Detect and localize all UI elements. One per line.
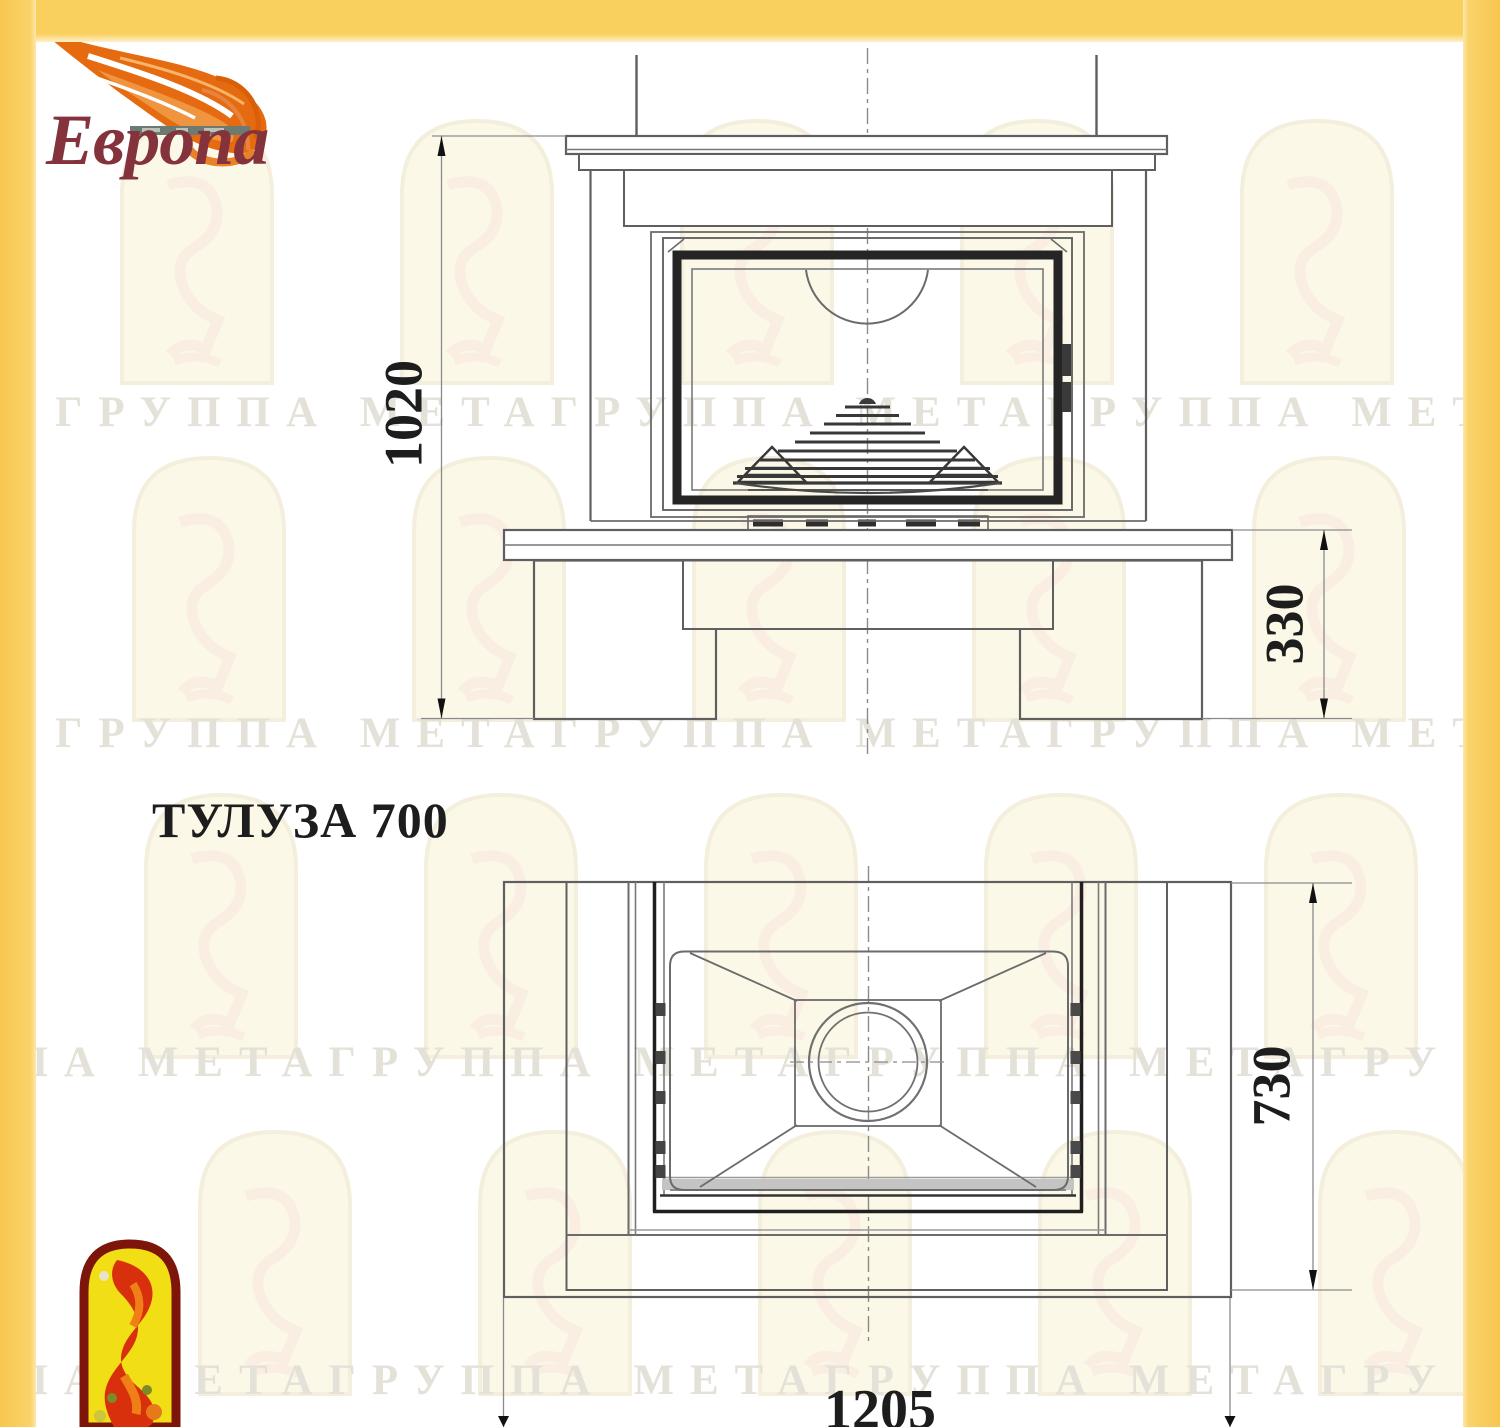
svg-text:ГРУППА МЕТАГРУППА МЕТАГРУППА М: ГРУППА МЕТАГРУППА МЕТАГРУППА МЕТА — [55, 389, 1500, 436]
svg-text:ППА МЕТАГРУППА МЕТАГРУППА МЕТА: ППА МЕТАГРУППА МЕТАГРУППА МЕТАГРУ — [0, 1357, 1452, 1404]
svg-text:ГРУППА МЕТАГРУППА МЕТАГРУППА М: ГРУППА МЕТАГРУППА МЕТАГРУППА МЕТА — [55, 710, 1500, 757]
svg-text:ТУЛУЗА 700: ТУЛУЗА 700 — [152, 792, 449, 848]
svg-text:730: 730 — [1241, 1046, 1301, 1127]
svg-text:ППА МЕТАГРУППА МЕТАГРУППА МЕТА: ППА МЕТАГРУППА МЕТАГРУППА МЕТАГРУ — [0, 1039, 1452, 1086]
svg-text:1205: 1205 — [824, 1379, 936, 1427]
svg-text:330: 330 — [1254, 584, 1314, 665]
svg-text:Европа: Европа — [45, 100, 268, 180]
svg-text:1020: 1020 — [373, 360, 433, 468]
